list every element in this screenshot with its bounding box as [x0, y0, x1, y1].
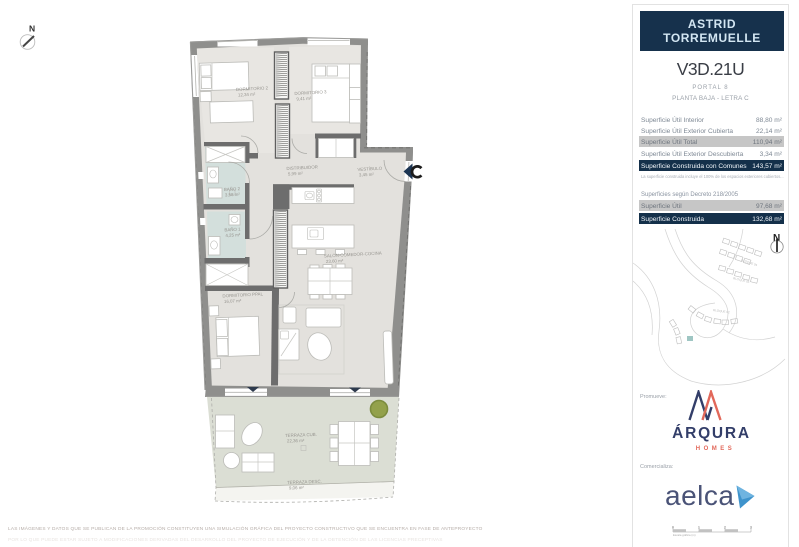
svg-text:3,45 m²: 3,45 m²	[359, 172, 375, 178]
svg-text:3,58 m²: 3,58 m²	[225, 192, 241, 198]
svg-text:BLOQUE 05: BLOQUE 05	[733, 276, 750, 284]
svg-text:0: 0	[672, 526, 674, 530]
svg-text:5,99 m²: 5,99 m²	[288, 171, 304, 177]
svg-text:9,41 m²: 9,41 m²	[296, 96, 312, 102]
svg-text:2: 2	[724, 526, 726, 530]
svg-text:1: 1	[698, 526, 700, 530]
svg-text:23,60 m²: 23,60 m²	[326, 258, 344, 264]
svg-text:3: 3	[750, 526, 752, 530]
svg-text:16,07 m²: 16,07 m²	[224, 298, 242, 304]
svg-text:9,06 m²: 9,06 m²	[289, 485, 305, 491]
svg-text:N: N	[29, 24, 35, 34]
svg-text:22,36 m²: 22,36 m²	[287, 438, 305, 444]
svg-text:12,34 m²: 12,34 m²	[238, 92, 256, 98]
svg-text:Escala gráfica (m): Escala gráfica (m)	[673, 533, 696, 537]
svg-text:4,25 m²: 4,25 m²	[225, 232, 241, 238]
